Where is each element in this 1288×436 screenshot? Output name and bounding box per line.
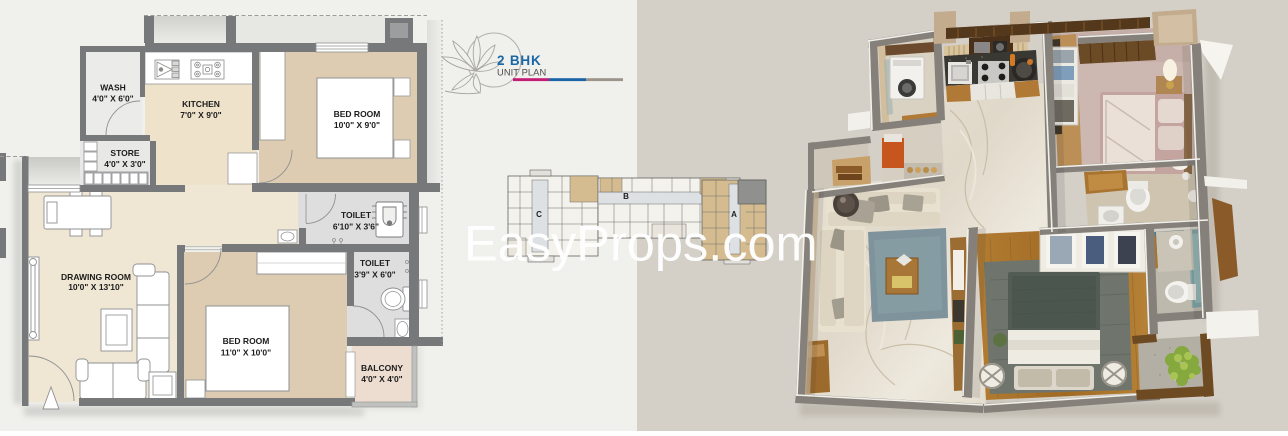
svg-text:BALCONY: BALCONY [361, 363, 403, 373]
svg-text:BED ROOM: BED ROOM [334, 109, 381, 119]
svg-text:TOILET: TOILET [360, 258, 391, 268]
svg-text:EasyProps.com: EasyProps.com [464, 215, 818, 272]
svg-text:4'0" X 6'0": 4'0" X 6'0" [92, 94, 133, 104]
svg-text:10'0" X 9'0": 10'0" X 9'0" [334, 120, 380, 130]
svg-text:WASH: WASH [100, 83, 126, 93]
svg-text:7'0" X 9'0": 7'0" X 9'0" [180, 110, 221, 120]
svg-text:11'0" X 10'0": 11'0" X 10'0" [221, 348, 271, 358]
svg-text:10'0" X 13'10": 10'0" X 13'10" [68, 282, 124, 292]
svg-text:6'10" X 3'6": 6'10" X 3'6" [333, 222, 379, 232]
svg-text:BED ROOM: BED ROOM [223, 336, 270, 346]
svg-text:3'9" X 6'0": 3'9" X 6'0" [354, 270, 395, 280]
svg-text:TOILET: TOILET [341, 210, 372, 220]
svg-text:B: B [623, 192, 629, 201]
svg-text:STORE: STORE [110, 148, 139, 158]
svg-text:KITCHEN: KITCHEN [182, 99, 220, 109]
svg-text:4'0" X 3'0": 4'0" X 3'0" [104, 159, 145, 169]
svg-text:2 BHK: 2 BHK [497, 53, 542, 68]
svg-text:UNIT PLAN: UNIT PLAN [497, 68, 546, 78]
svg-text:DRAWING ROOM: DRAWING ROOM [61, 272, 131, 282]
svg-text:4'0" X 4'0": 4'0" X 4'0" [361, 374, 402, 384]
